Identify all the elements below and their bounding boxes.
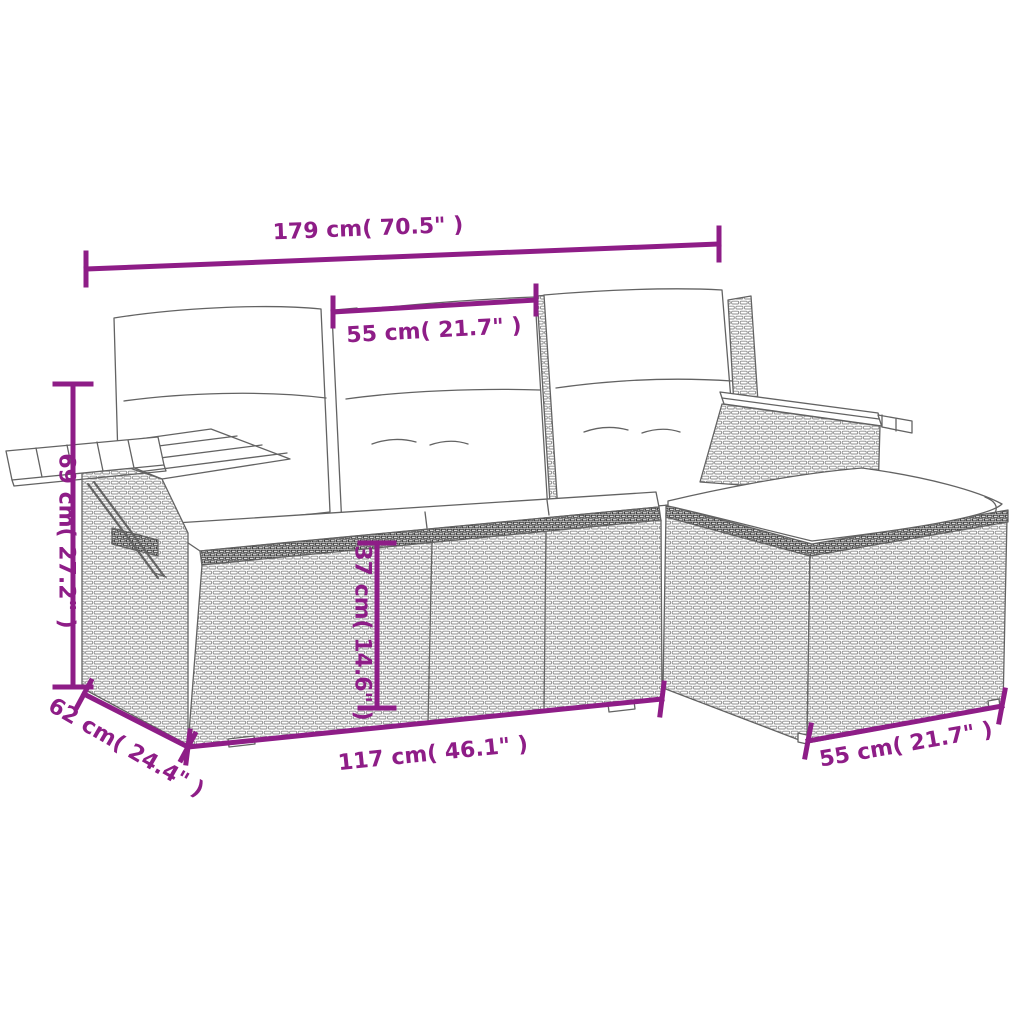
ottoman <box>663 468 1008 744</box>
back-post-right <box>728 296 758 406</box>
product-dimension-diagram: 179 cm( 70.5" ) 55 cm( 21.7" ) 69 cm( 27… <box>0 0 1024 1024</box>
dim-label-seat-height: 37 cm( 14.6" ) <box>350 545 375 720</box>
right-armrest-bracket <box>878 415 912 433</box>
sofa-line-art <box>0 0 1024 1024</box>
dim-label-height: 69 cm( 27.2" ) <box>54 453 79 628</box>
